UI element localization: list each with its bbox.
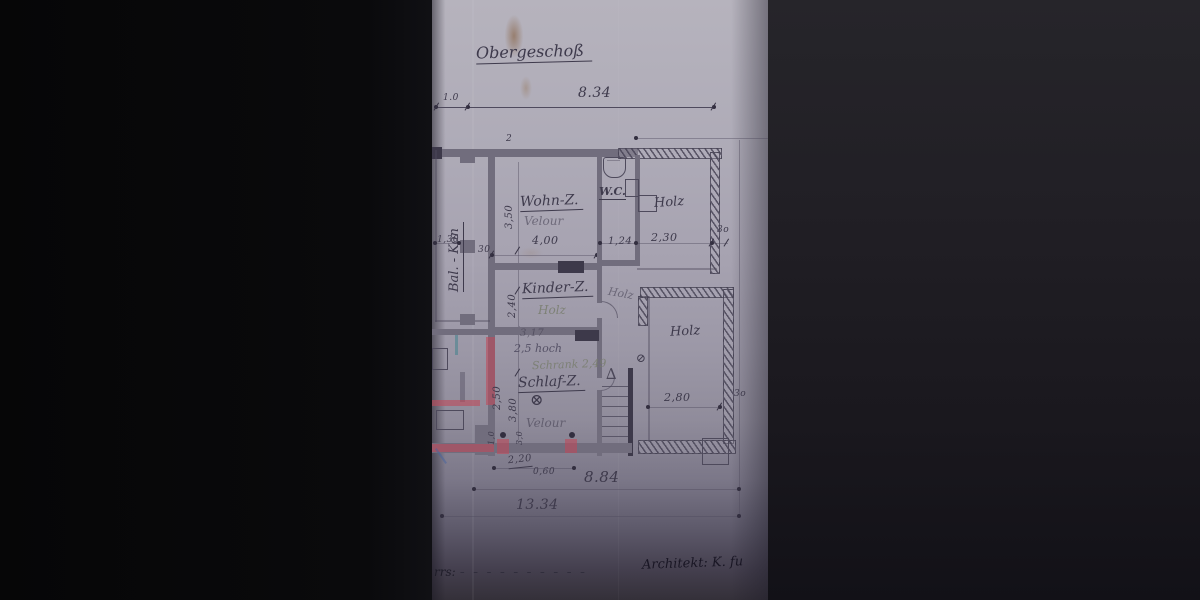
dim-wc-width: 1,24 [608,237,632,247]
note-top: 2 [506,135,512,144]
dim-wall-3o: 3o [734,390,746,399]
dim-holz-top-width: 2,30 [651,232,678,243]
wall-left-room [432,329,488,335]
dim-wohn-width: 4,00 [532,235,559,246]
wall-pier [432,147,442,159]
wall-right-hatched-upper [710,152,720,274]
floor-label-kinder: Holz [538,304,566,316]
dim-top-span: 8.34 [578,86,611,100]
screenshot: Obergeschoß 1.0 8.34 2 Bal. - Kon 1,30 3… [0,0,1200,600]
dim-small-1: 1,0 [488,431,496,445]
room-label-wc: W.C. [599,186,626,200]
dim-line-right [739,140,740,518]
chimney-block [575,330,599,341]
wall-notch [702,438,729,465]
room-label-schlaf: Schlaf-Z. [518,374,585,393]
left-room-outline [436,410,464,430]
wall-marked-red [432,400,480,406]
window-marked-red [565,439,577,453]
wall-corridor [597,263,602,303]
dim-schlaf-depth: 3,80 [509,398,519,422]
dim-schlaf-left: 2,50 [493,386,503,410]
dark-border-right [768,0,1200,600]
dim-window-width: 2,20 [507,454,532,469]
wall-wohn-kinder [488,263,602,270]
black-border-left [0,0,432,600]
annotation-schrank: Schrank 2,49 [532,358,607,372]
footer-left: rrs: [434,566,456,578]
window-marked-red [432,444,494,452]
wall-left-room [460,372,465,402]
wall-holz-top-bottom [637,268,717,270]
balcony-pier [460,314,475,325]
floor-label-wohn: Velour [524,215,563,227]
room-label-holz-right: Holz [670,324,701,339]
dim-wall-3o: 3o [717,226,729,235]
dim-line-top-right [636,138,768,139]
wall-wc-bottom [597,260,640,266]
dim-kinder-depth: 2,40 [508,294,518,318]
dim-holz-right-width: 2,80 [664,392,691,403]
room-label-holz-top: Holz [654,195,685,210]
dim-bottom-span: 8.84 [584,470,619,485]
annotation-317: 3,17 [520,329,544,339]
architect-signature: Architekt: K. fu [642,555,744,572]
dim-wohn-depth: 3,50 [505,205,515,229]
annotation-hoch: 2,5 hoch [514,343,562,354]
floor-plan-photo: Obergeschoß 1.0 8.34 2 Bal. - Kon 1,30 3… [432,0,768,600]
balcony-pier [460,152,475,163]
wc-fixture [625,179,639,197]
paper-crease [472,0,474,600]
dim-wall-30: 30 [478,246,490,255]
paper-crease [618,0,619,600]
room-label-balkon: Bal. - Kon [448,222,464,292]
door-arc [601,301,618,318]
left-room-outline [432,348,448,370]
floor-label-schlaf: Velour [526,417,565,429]
plan-title: Obergeschoß [476,42,592,64]
dim-total-span: 13.34 [516,498,559,512]
dim-window-alt: 0,60 [533,468,555,477]
dim-top-left: 1.0 [443,94,459,103]
door-mark-icon: ⊘ [636,352,646,364]
dim-small-3: 3,0 [516,431,524,445]
room-label-wohn: Wohn-Z. [520,193,583,212]
schlaf-mark-icon: ⊗ [530,392,543,408]
teal-mark [455,335,458,355]
floor-label-flur: Holz [607,286,634,301]
wall-holz-right-side [723,289,734,444]
room-label-kinder: Kinder-Z. [522,280,593,299]
wall-wc-left [597,155,602,265]
chimney-block [558,261,584,273]
stairs-arrow-icon: ∆ [606,367,616,382]
wall-hatched-small [638,296,648,326]
wall-holz-right-left [648,296,650,442]
wall-top-hatched [618,148,722,159]
wall-holz-right-top [640,287,734,298]
window-marked-red [497,439,509,454]
dim-line-top [436,107,715,108]
footer-dashes: – – – – – – – – – – [460,569,588,578]
